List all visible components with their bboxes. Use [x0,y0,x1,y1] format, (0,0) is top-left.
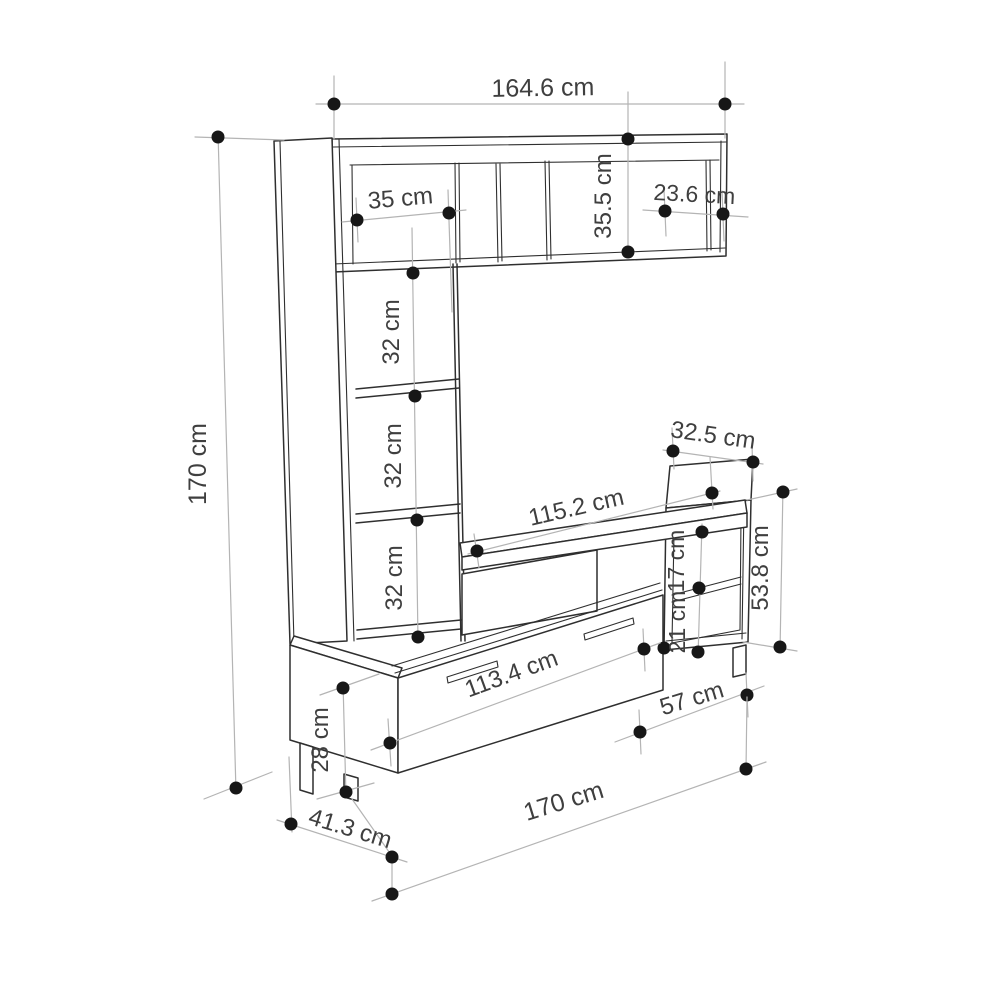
dim-label-right-upper-compartment: 17 cm [663,530,689,593]
dim-label-upper-right-compartment: 23.6 cm [653,179,736,209]
dim-label-top-width: 164.6 cm [491,73,594,103]
dim-label-cubby-middle: 32 cm [380,423,407,488]
dimension-cubbies: 32 cm 32 cm 32 cm [378,228,425,644]
dim-label-total-height: 170 cm [184,423,212,505]
dim-label-total-width: 170 cm [520,776,607,827]
shelf-column [356,264,465,641]
dimension-upper-cabinet-height: 35.5 cm [590,92,635,259]
dim-label-right-cabinet-height: 53.8 cm [747,525,774,610]
dimension-base-depth: 41.3 cm [277,757,407,896]
dim-label-right-base-width: 57 cm [657,676,727,721]
dimension-total-height: 170 cm [184,131,284,800]
dim-label-right-depth: 32.5 cm [669,416,757,455]
dim-label-cubby-top: 32 cm [378,299,405,364]
dim-label-right-lower-compartment: 21 cm [664,591,690,654]
dim-label-upper-cabinet-height: 35.5 cm [590,153,617,238]
dim-label-cubby-bottom: 32 cm [381,545,408,610]
furniture-dimension-diagram: 164.6 cm 170 cm 35 cm 35.5 cm 23.6 cm [0,0,1000,1000]
dim-label-base-depth: 41.3 cm [305,803,395,854]
dim-label-upper-left-compartment: 35 cm [367,182,434,215]
dimension-top-width: 164.6 cm [316,62,744,139]
technical-drawing-page: 164.6 cm 170 cm 35 cm 35.5 cm 23.6 cm [0,0,1000,1000]
dim-label-base-height: 28 cm [307,707,334,772]
